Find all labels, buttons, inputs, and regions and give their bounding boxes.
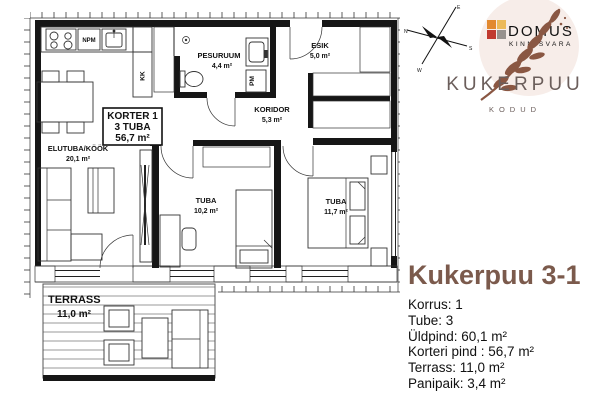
- terrace-sofa: [172, 310, 208, 368]
- compass-s: S: [469, 46, 473, 52]
- npm-label: NPM: [82, 38, 95, 44]
- terrace-chair-2: [104, 340, 134, 365]
- toilet-icon: [180, 71, 203, 87]
- dining-table: [37, 71, 93, 133]
- room-label-koridor: KORIDOR: [254, 105, 290, 114]
- compass-e: E: [457, 5, 461, 11]
- floor-plan: NPM KK: [0, 0, 400, 400]
- compass-n: N: [404, 29, 408, 35]
- compass-w: W: [417, 68, 422, 74]
- nightstand-bottom: [371, 248, 387, 266]
- korter-info-box: KORTER 1 3 TUBA 56,7 m²: [103, 108, 162, 145]
- living-room: ELUTUBA/KÖÖK 20,1 m² KORTER 1 3 TUBA 56,…: [37, 71, 162, 262]
- sink-icon: [102, 29, 126, 50]
- shower-head-icon: [183, 37, 190, 44]
- bedroom-small: TUBA 10,2 m²: [160, 147, 272, 268]
- washbasin-icon: [246, 38, 268, 66]
- terrace-table: [142, 318, 168, 358]
- stove-icon: [46, 29, 76, 50]
- bedroom-large: TUBA 11,7 m²: [308, 156, 387, 266]
- korter-line3: 56,7 m²: [115, 133, 150, 144]
- terrace-door: [100, 235, 133, 268]
- room-area-pesuruum: 4,4 m²: [212, 63, 233, 70]
- detail-row-terrass: Terrass: 11,0 m²: [408, 360, 534, 376]
- desk-chair: [182, 228, 196, 250]
- desk: [160, 215, 180, 267]
- detail-row-korrus: Korrus: 1: [408, 297, 534, 313]
- detail-row-panipaik: Panipaik: 3,4 m²: [408, 376, 534, 392]
- bedroom1-door: [161, 146, 193, 178]
- interior-walls: [150, 27, 391, 268]
- bedroom2-door: [283, 146, 313, 176]
- detail-row-uldpind: Üldpind: 60,1 m²: [408, 329, 534, 345]
- armchair: [88, 168, 114, 213]
- tv-bench: [140, 150, 152, 262]
- bed-single: [236, 190, 272, 268]
- brand-tagline: KODUD: [430, 105, 600, 114]
- apartment-title: Kukerpuu 3-1: [408, 260, 581, 291]
- shower: [154, 27, 174, 92]
- listing-info-panel: N E S W DOMUS KINNISVARA: [400, 0, 600, 400]
- room-area-koridor: 5,3 m²: [262, 117, 283, 124]
- korter-line2: 3 TUBA: [114, 122, 150, 133]
- detail-row-korteri: Korteri pind : 56,7 m²: [408, 344, 534, 360]
- detail-row-tube: Tube: 3: [408, 313, 534, 329]
- wardrobe-esik: [360, 27, 390, 72]
- terrace: TERRASS 11,0 m²: [43, 284, 215, 381]
- room-label-terrass: TERRASS: [48, 294, 101, 306]
- sofa: [38, 168, 102, 261]
- room-label-elutuba: ELUTUBA/KÖÖK: [48, 144, 109, 153]
- terrace-chair-1: [104, 306, 134, 331]
- room-area-tuba2: 11,7 m²: [324, 209, 348, 216]
- logo-subtitle: KINNISVARA: [509, 41, 573, 48]
- korter-line1: KORTER 1: [107, 111, 158, 122]
- room-label-pesuruum: PESURUUM: [198, 51, 241, 60]
- room-area-tuba1: 10,2 m²: [194, 208, 219, 215]
- room-area-elutuba: 20,1 m²: [66, 156, 91, 163]
- room-label-tuba2: TUBA: [326, 197, 347, 206]
- floorplan-listing-image: NPM KK: [0, 0, 600, 400]
- closet-lower: [313, 101, 390, 128]
- bathroom-door: [207, 98, 235, 126]
- compass-icon: N E S W: [404, 2, 476, 78]
- wardrobe-bedroom1: [203, 147, 270, 167]
- brand-name: KUKERPUU: [430, 74, 600, 96]
- apartment-details: Korrus: 1 Tube: 3 Üldpind: 60,1 m² Korte…: [408, 297, 534, 392]
- nightstand-top: [371, 156, 387, 174]
- kitchen: NPM KK: [41, 27, 152, 97]
- room-area-esik: 5,0 m²: [310, 53, 331, 60]
- closet-upper: [313, 73, 390, 96]
- room-area-terrass: 11,0 m²: [57, 309, 92, 320]
- pm-label: PM: [249, 76, 256, 86]
- room-label-tuba1: TUBA: [196, 196, 217, 205]
- bathroom: PM PESURUUM 4,4 m²: [154, 27, 268, 92]
- bottom-windows: [55, 271, 348, 277]
- kk-label: KK: [140, 71, 147, 81]
